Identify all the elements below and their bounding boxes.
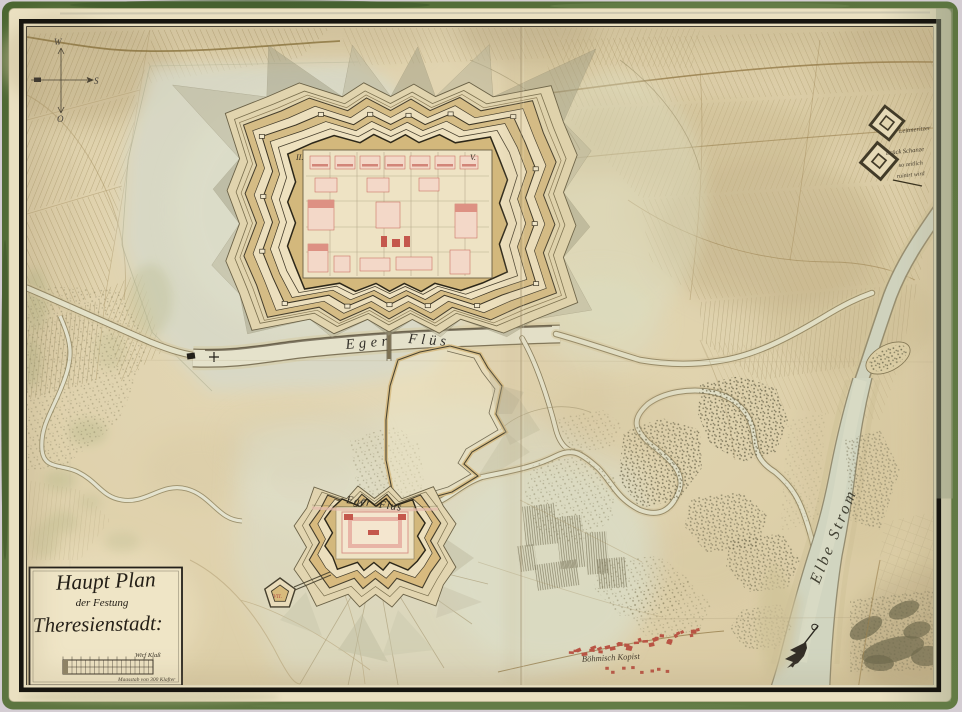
svg-text:der Festung: der Festung xyxy=(76,597,129,609)
svg-text:Flüs: Flüs xyxy=(407,331,451,350)
svg-text:Wirf Klaß: Wirf Klaß xyxy=(135,652,161,659)
svg-text:Theresienstadt:: Theresienstadt: xyxy=(33,611,163,637)
svg-text:S: S xyxy=(94,76,99,86)
svg-text:O: O xyxy=(57,114,64,124)
svg-text:Haupt Plan: Haupt Plan xyxy=(55,567,157,595)
svg-text:II.: II. xyxy=(295,153,303,162)
svg-text:VII.: VII. xyxy=(273,594,282,600)
svg-text:V.: V. xyxy=(470,153,476,162)
